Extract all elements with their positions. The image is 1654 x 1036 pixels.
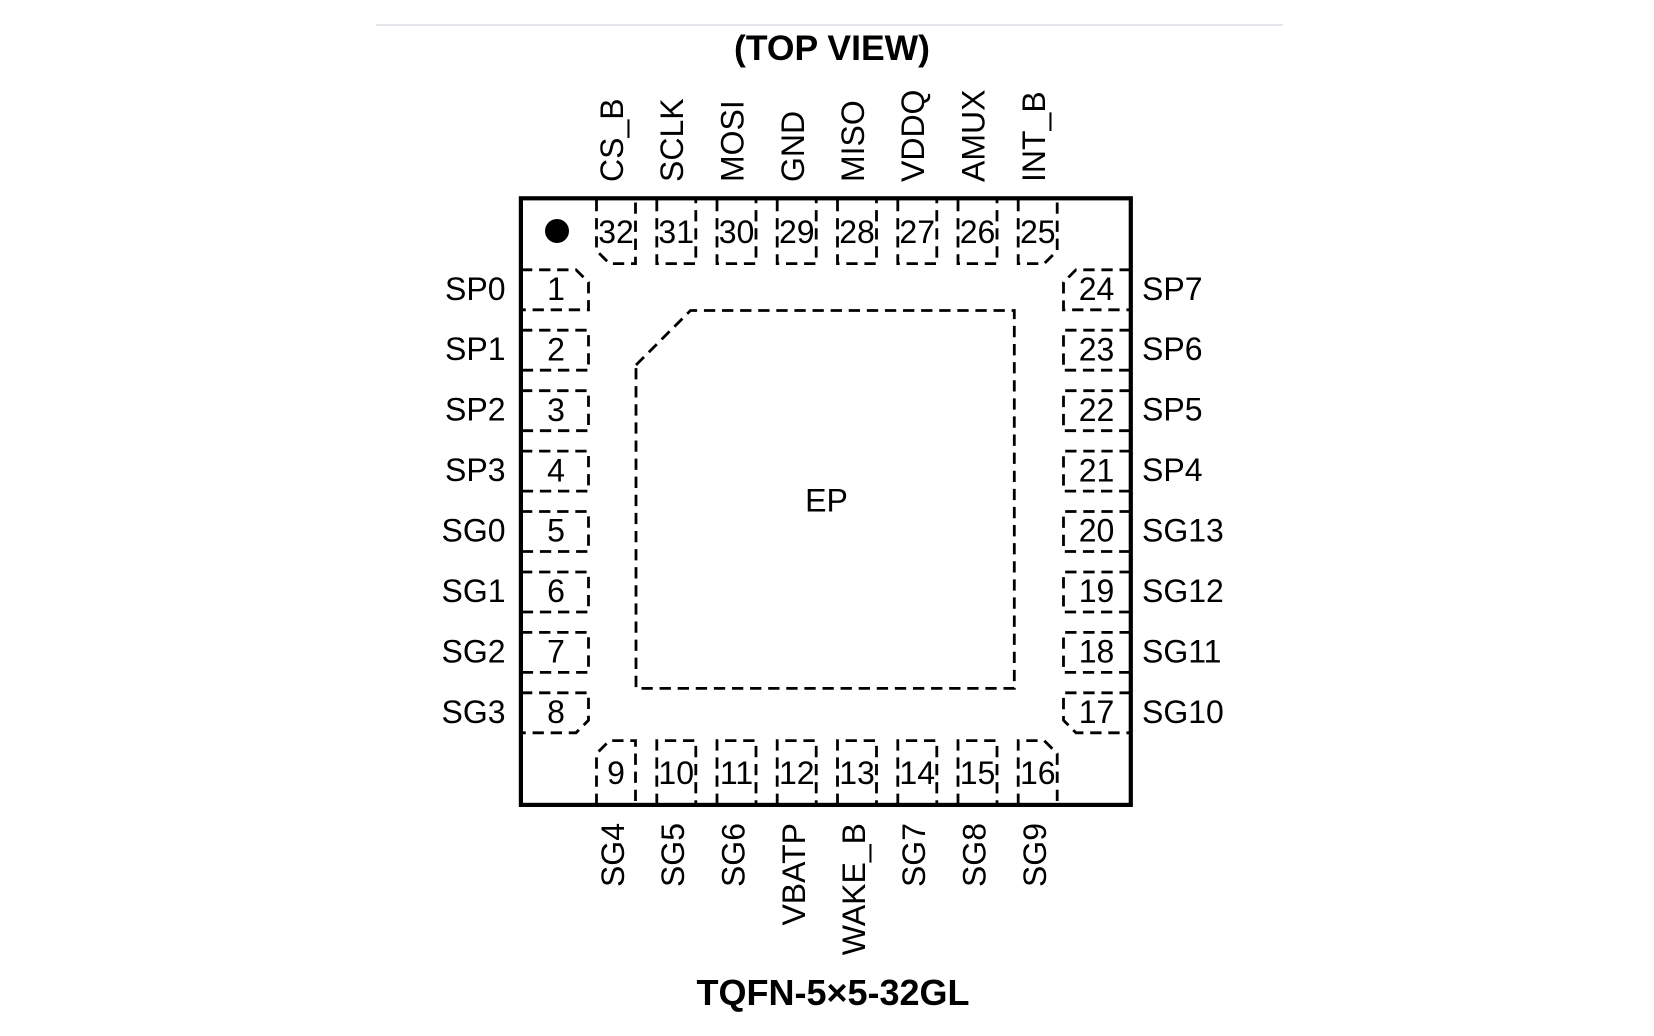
- svg-text:21: 21: [1079, 452, 1115, 488]
- svg-text:SG13: SG13: [1142, 513, 1224, 549]
- svg-text:11: 11: [720, 755, 753, 791]
- svg-text:10: 10: [658, 755, 694, 791]
- svg-text:18: 18: [1079, 634, 1115, 670]
- svg-text:SG11: SG11: [1142, 633, 1221, 669]
- svg-text:13: 13: [839, 755, 875, 791]
- svg-text:SG5: SG5: [655, 823, 691, 887]
- svg-text:EP: EP: [805, 483, 848, 519]
- svg-text:8: 8: [547, 694, 565, 730]
- svg-text:16: 16: [1020, 755, 1056, 791]
- svg-text:SG2: SG2: [441, 633, 505, 669]
- svg-text:VBATP: VBATP: [776, 823, 812, 926]
- svg-text:SG6: SG6: [716, 823, 752, 887]
- svg-text:(TOP VIEW): (TOP VIEW): [734, 28, 930, 68]
- svg-text:SP6: SP6: [1142, 331, 1202, 367]
- svg-text:7: 7: [547, 634, 565, 670]
- svg-text:5: 5: [547, 513, 565, 549]
- svg-text:27: 27: [899, 214, 935, 250]
- svg-text:SG9: SG9: [1017, 823, 1053, 887]
- svg-text:32: 32: [598, 214, 634, 250]
- svg-text:SG12: SG12: [1142, 573, 1224, 609]
- svg-text:3: 3: [547, 392, 565, 428]
- svg-text:MISO: MISO: [835, 100, 871, 182]
- svg-text:MOSI: MOSI: [715, 100, 751, 182]
- svg-text:TQFN-5×5-32GL: TQFN-5×5-32GL: [696, 972, 969, 1013]
- svg-text:22: 22: [1079, 392, 1115, 428]
- svg-text:29: 29: [779, 214, 815, 250]
- svg-text:26: 26: [960, 214, 996, 250]
- svg-text:SG8: SG8: [957, 823, 993, 887]
- svg-text:SG3: SG3: [441, 694, 505, 730]
- svg-text:12: 12: [779, 755, 815, 791]
- svg-text:INT_B: INT_B: [1016, 91, 1052, 182]
- svg-text:14: 14: [899, 755, 935, 791]
- svg-text:SG7: SG7: [896, 823, 932, 887]
- svg-text:VDDQ: VDDQ: [895, 90, 931, 182]
- svg-text:20: 20: [1079, 513, 1115, 549]
- svg-text:SP0: SP0: [445, 271, 505, 307]
- svg-text:SG10: SG10: [1142, 694, 1224, 730]
- svg-text:24: 24: [1079, 271, 1115, 307]
- svg-text:28: 28: [839, 214, 875, 250]
- svg-text:15: 15: [960, 755, 996, 791]
- svg-text:GND: GND: [775, 111, 811, 182]
- svg-text:6: 6: [547, 573, 565, 609]
- svg-text:9: 9: [607, 755, 625, 791]
- svg-text:SP7: SP7: [1142, 271, 1202, 307]
- svg-text:SP3: SP3: [445, 452, 505, 488]
- svg-text:SG1: SG1: [441, 573, 505, 609]
- svg-text:4: 4: [547, 452, 565, 488]
- svg-text:CS_B: CS_B: [594, 98, 630, 182]
- svg-text:31: 31: [658, 214, 694, 250]
- svg-text:SG4: SG4: [595, 823, 631, 887]
- svg-text:19: 19: [1079, 573, 1115, 609]
- svg-text:2: 2: [547, 331, 565, 367]
- svg-text:SG0: SG0: [441, 513, 505, 549]
- svg-text:30: 30: [719, 214, 755, 250]
- svg-text:AMUX: AMUX: [956, 90, 992, 182]
- svg-text:SCLK: SCLK: [654, 98, 690, 182]
- svg-text:SP2: SP2: [445, 392, 505, 428]
- svg-text:WAKE_B: WAKE_B: [836, 823, 872, 955]
- svg-text:1: 1: [547, 271, 565, 307]
- svg-text:17: 17: [1079, 694, 1115, 730]
- svg-text:25: 25: [1020, 214, 1056, 250]
- svg-text:SP5: SP5: [1142, 392, 1202, 428]
- svg-text:SP4: SP4: [1142, 452, 1202, 488]
- svg-text:SP1: SP1: [445, 331, 505, 367]
- svg-text:23: 23: [1079, 331, 1115, 367]
